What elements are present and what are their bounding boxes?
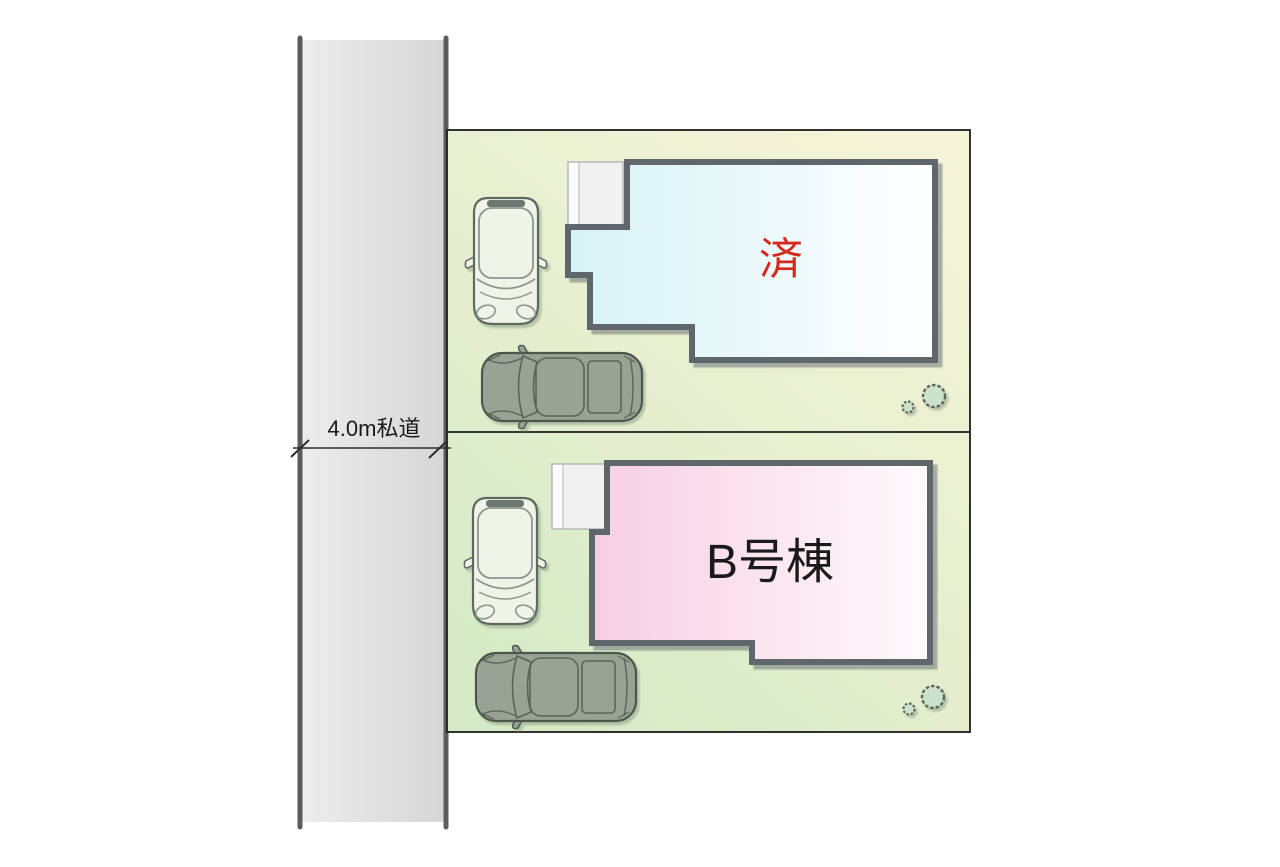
site-plan-diagram: 済 B号棟	[0, 0, 1280, 867]
compact-car-lot-b	[464, 498, 545, 624]
sedan-car-lot-a	[482, 346, 642, 429]
shrub-large-a	[923, 385, 945, 407]
porch-step	[564, 465, 606, 528]
road-width-label: 4.0m私道	[328, 416, 421, 441]
shrub-large-b	[922, 686, 944, 708]
compact-car-lot-a	[465, 198, 546, 324]
building-a-status-label: 済	[759, 235, 803, 284]
site-plan-canvas: 済 B号棟	[0, 0, 1280, 867]
entrance-porch-a	[568, 162, 623, 227]
building-b-name-label: B号棟	[706, 536, 834, 589]
porch-step	[580, 163, 622, 226]
site-area: 済 B号棟	[447, 130, 970, 732]
shrub-small-a	[903, 402, 914, 413]
shrub-small-b	[904, 704, 915, 715]
sedan-car-lot-b	[476, 646, 636, 729]
entrance-porch-b	[552, 464, 607, 529]
